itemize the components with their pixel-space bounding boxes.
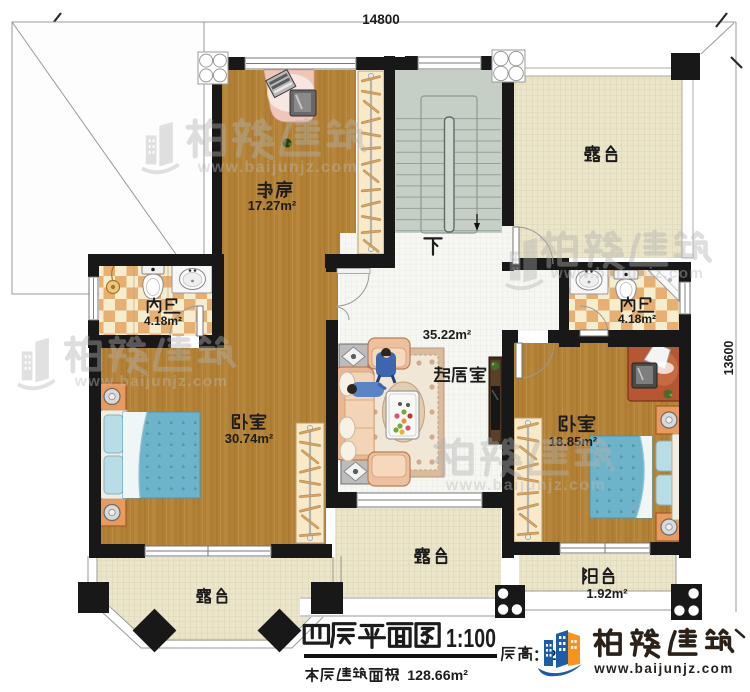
svg-text:1:100: 1:100: [446, 623, 496, 653]
svg-text:www.baijunjz.com: www.baijunjz.com: [197, 159, 359, 176]
svg-text:4.18m²: 4.18m²: [618, 312, 656, 326]
svg-text:30.74m²: 30.74m²: [225, 431, 274, 446]
svg-text:35.22m²: 35.22m²: [423, 327, 472, 342]
svg-text:www.baijunjz.com: www.baijunjz.com: [593, 661, 734, 676]
svg-text:：128.66m²: ：128.66m²: [393, 668, 468, 684]
svg-text:www.baijunjz.com: www.baijunjz.com: [445, 477, 607, 494]
svg-text:1.92m²: 1.92m²: [586, 586, 628, 601]
svg-text:www.baijunjz.com: www.baijunjz.com: [550, 265, 704, 282]
svg-text:13600: 13600: [722, 341, 736, 376]
svg-text:4.18m²: 4.18m²: [144, 314, 182, 328]
svg-text:14800: 14800: [362, 12, 400, 27]
svg-text:www.baijunjz.com: www.baijunjz.com: [74, 373, 228, 390]
svg-text:17.27m²: 17.27m²: [248, 198, 297, 213]
